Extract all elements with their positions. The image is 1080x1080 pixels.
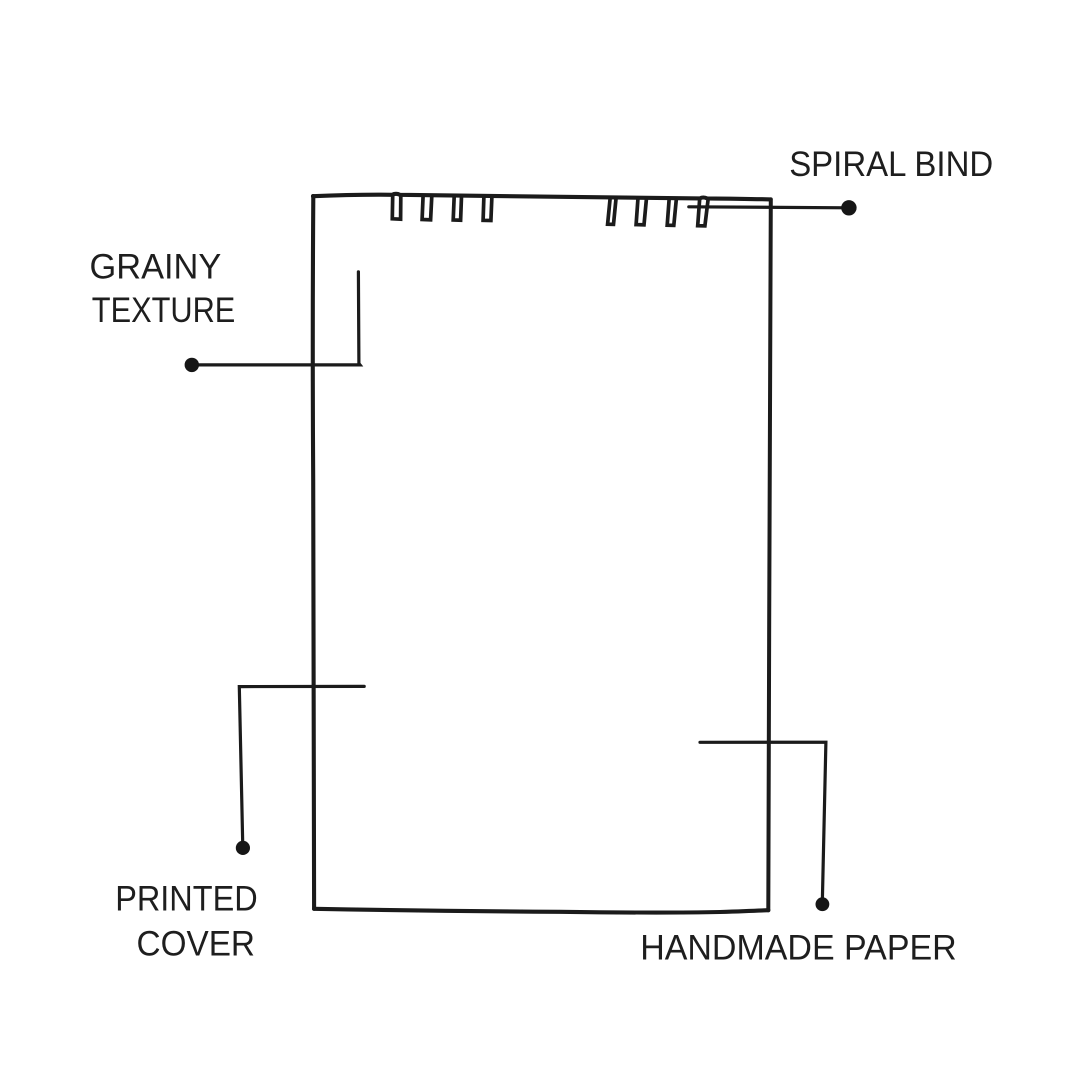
svg-text:SPIRAL BIND: SPIRAL BIND (789, 144, 993, 184)
svg-text:GRAINY: GRAINY (90, 246, 222, 286)
svg-text:HANDMADE PAPER: HANDMADE PAPER (640, 928, 957, 968)
svg-text:TEXTURE: TEXTURE (92, 290, 236, 330)
svg-text:COVER: COVER (137, 924, 256, 964)
svg-text:PRINTED: PRINTED (115, 879, 258, 919)
